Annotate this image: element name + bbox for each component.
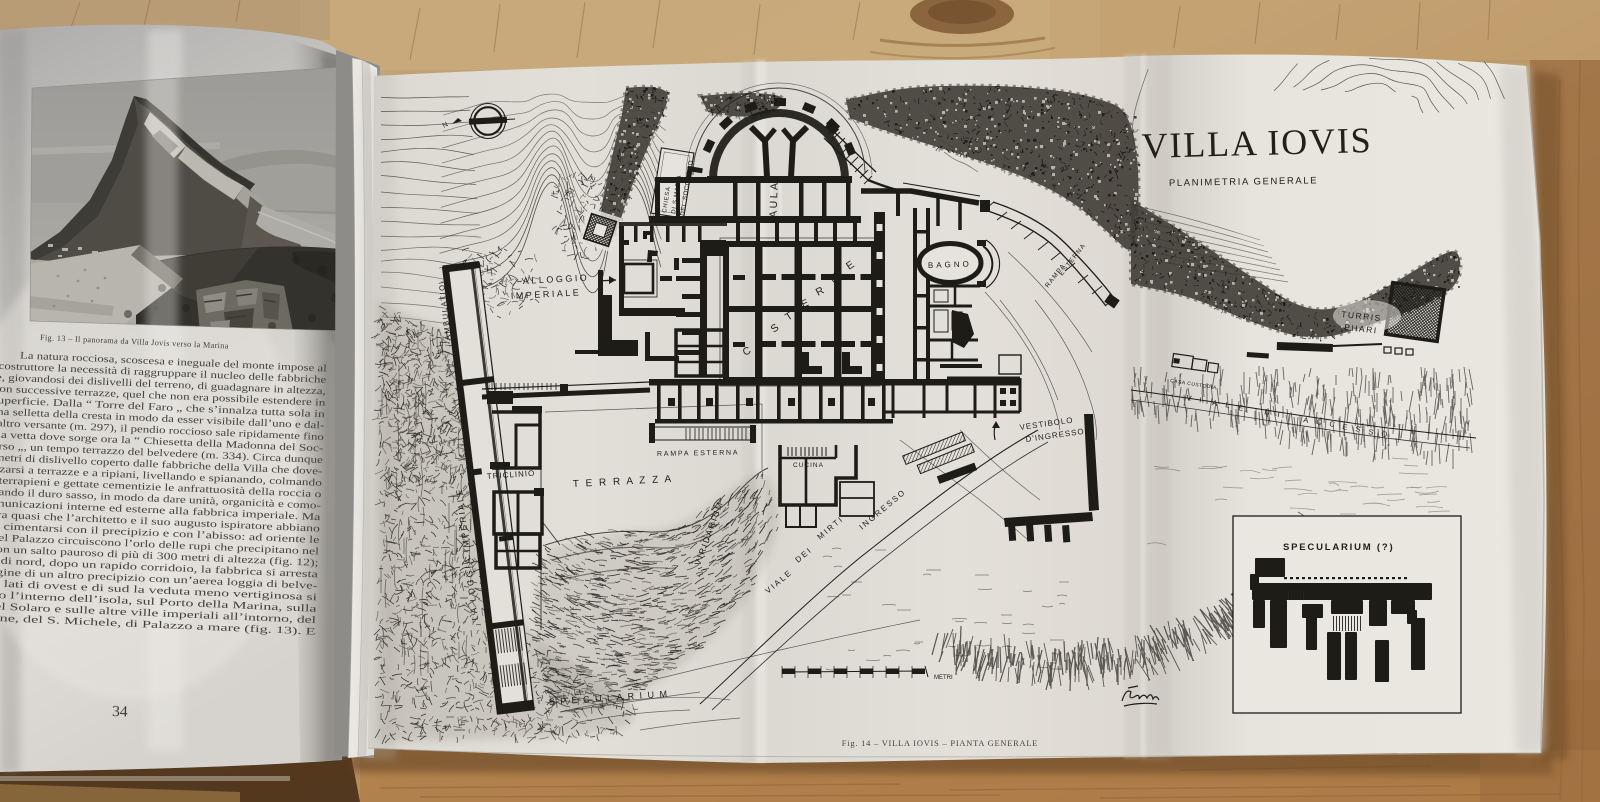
svg-text:BAGNO: BAGNO xyxy=(928,259,972,270)
svg-text:METRI: METRI xyxy=(934,675,953,681)
svg-text:SPECULARIUM (?): SPECULARIUM (?) xyxy=(1283,542,1394,553)
svg-text:RAMPA ESTERNA: RAMPA ESTERNA xyxy=(657,450,740,458)
svg-text:CUCINA: CUCINA xyxy=(793,462,824,469)
svg-text:34: 34 xyxy=(112,703,128,721)
svg-text:AULA: AULA xyxy=(768,180,781,218)
svg-text:VILLA IOVIS: VILLA IOVIS xyxy=(1141,120,1373,166)
svg-text:Fig. 14 – VILLA IOVIS – PIANTA: Fig. 14 – VILLA IOVIS – PIANTA GENERALE xyxy=(842,739,1038,748)
